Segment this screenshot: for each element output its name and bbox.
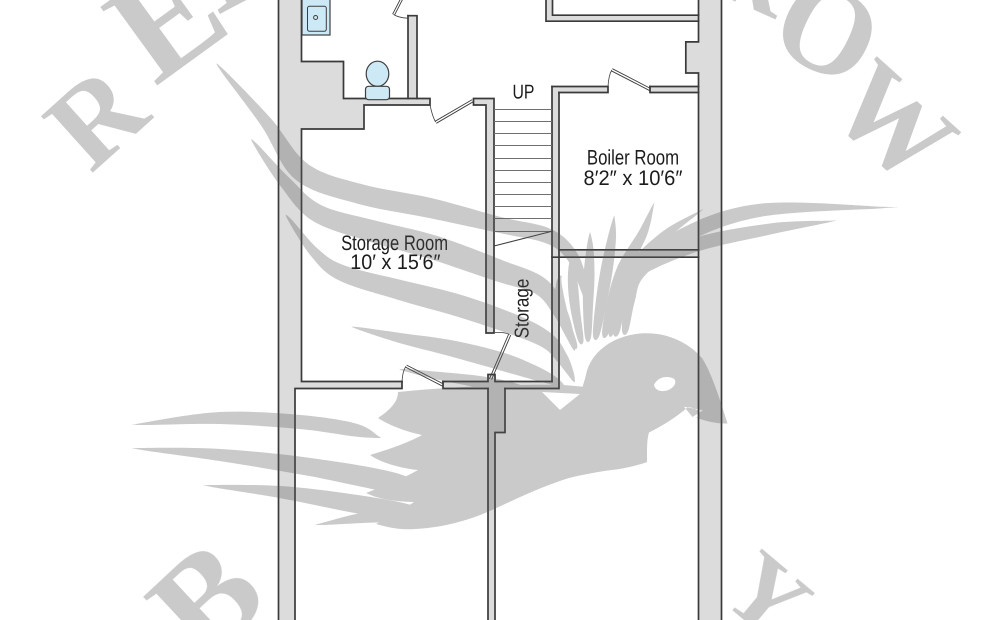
svg-text:UP: UP <box>513 82 535 104</box>
svg-text:8′2″ x 10′6″: 8′2″ x 10′6″ <box>584 167 684 190</box>
svg-text:Y: Y <box>704 529 832 620</box>
svg-text:B: B <box>119 511 293 620</box>
